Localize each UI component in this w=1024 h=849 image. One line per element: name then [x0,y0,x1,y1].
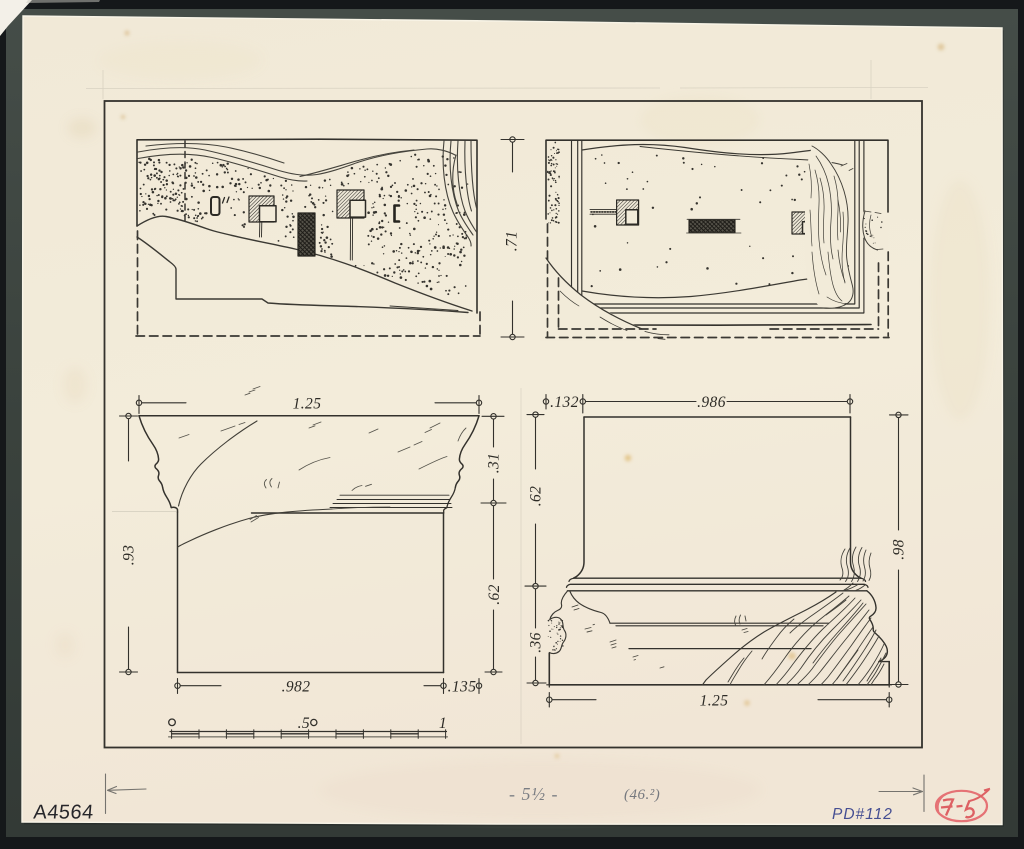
svg-text:.132: .132 [550,394,579,411]
svg-text:.36: .36 [528,632,545,653]
svg-text:.98: .98 [891,539,908,560]
svg-text:(46.²): (46.²) [624,787,660,803]
svg-text:.93: .93 [121,545,138,566]
svg-text:- 5½ -: - 5½ - [509,784,559,804]
svg-text:.982: .982 [282,679,311,696]
svg-text:PD#112: PD#112 [832,806,893,823]
svg-text:A4564: A4564 [33,802,95,824]
svg-text:1.25: 1.25 [700,693,729,710]
svg-text:.986: .986 [697,394,726,411]
svg-text:.5: .5 [298,715,310,732]
svg-text:1: 1 [439,715,447,732]
svg-text:.71: .71 [504,231,521,252]
svg-text:.62: .62 [528,486,545,507]
svg-text:1.25: 1.25 [293,396,322,413]
svg-text:.62: .62 [486,584,503,605]
svg-text:.135: .135 [448,679,477,696]
svg-text:.31: .31 [486,453,503,474]
